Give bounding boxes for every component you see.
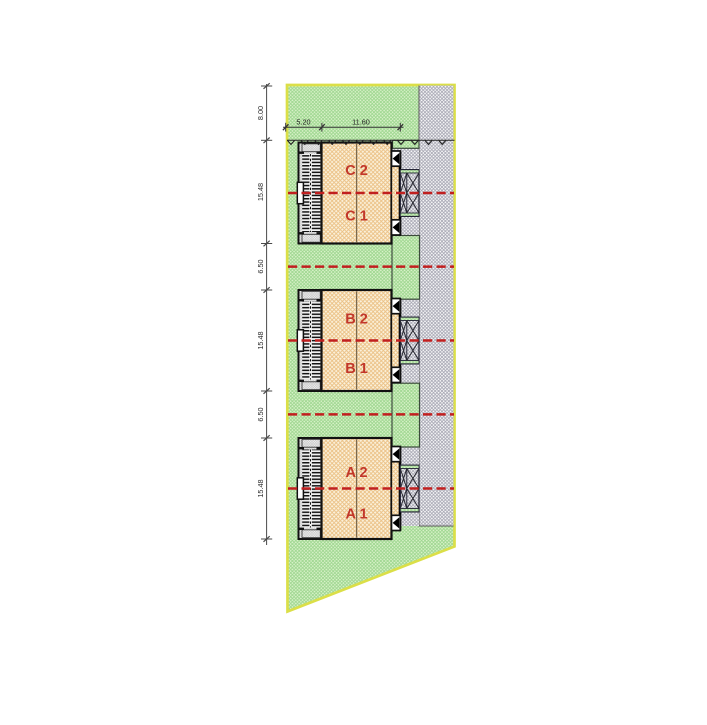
svg-text:A 2: A 2 [345, 465, 367, 481]
svg-text:C 2: C 2 [345, 163, 368, 179]
svg-text:6.50: 6.50 [256, 407, 265, 421]
svg-text:11.60: 11.60 [352, 118, 370, 127]
svg-text:5.20: 5.20 [296, 118, 310, 127]
svg-text:B 2: B 2 [345, 312, 368, 328]
svg-text:C 1: C 1 [345, 209, 368, 225]
svg-text:B 1: B 1 [345, 361, 368, 377]
svg-text:15.48: 15.48 [256, 331, 265, 349]
svg-text:6.50: 6.50 [256, 259, 265, 273]
svg-text:15.48: 15.48 [256, 479, 265, 497]
svg-text:15.48: 15.48 [256, 183, 265, 201]
svg-text:8.00: 8.00 [256, 106, 265, 120]
svg-text:A 1: A 1 [345, 506, 367, 522]
